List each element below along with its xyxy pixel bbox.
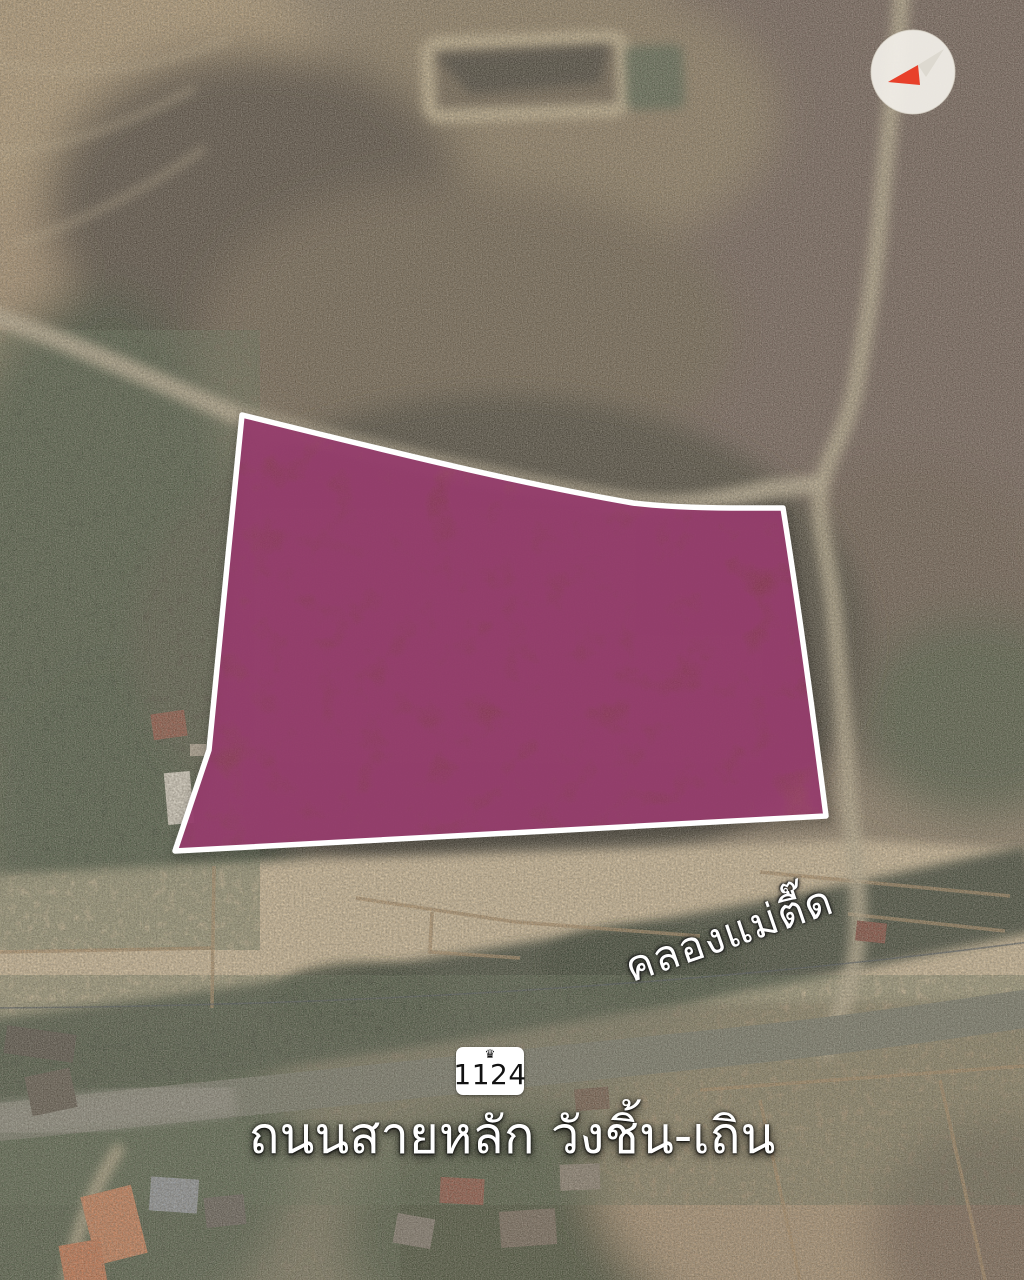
route-shield-1124: ♛ 1124: [456, 1047, 524, 1095]
compass-icon: [870, 29, 956, 115]
route-number: 1124: [453, 1060, 526, 1090]
satellite-map[interactable]: คลองแม่ตื๊ด ♛ 1124 ถนนสายหลัก วังชิ้น-เถ…: [0, 0, 1024, 1280]
compass-button[interactable]: [870, 29, 956, 115]
